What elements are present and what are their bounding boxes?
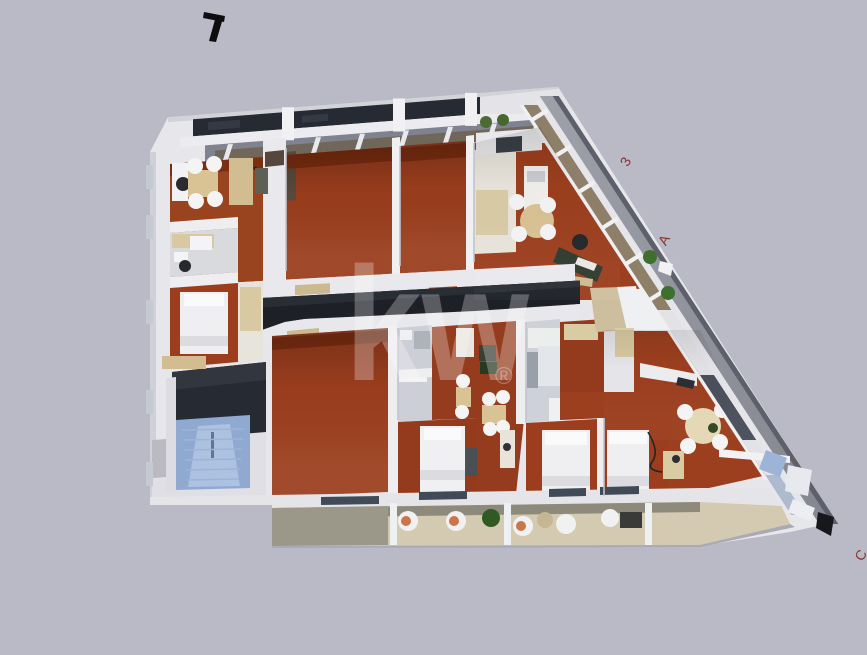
svg-text:®: ® <box>495 363 513 390</box>
